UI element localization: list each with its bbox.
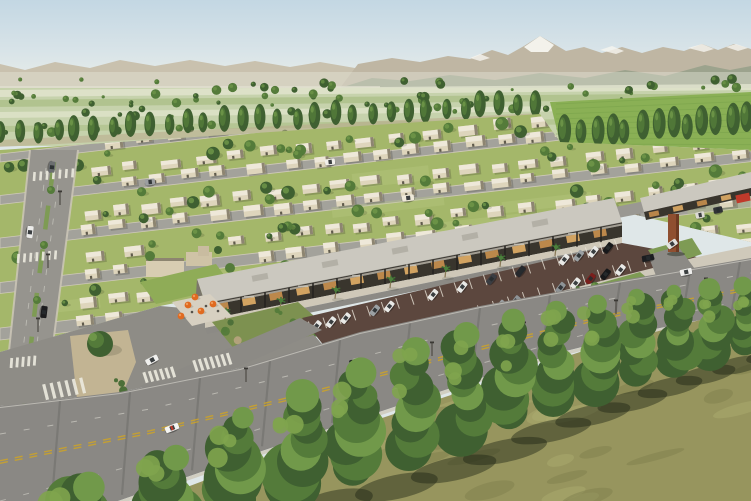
distant-tree-highlight [702, 86, 704, 88]
house [85, 268, 103, 281]
yard-tree-highlight [711, 166, 717, 172]
cafe-table [191, 311, 194, 314]
island-shrub [118, 380, 125, 387]
house [491, 177, 513, 191]
tree-highlight [663, 301, 673, 311]
poplar-tree-light [462, 101, 465, 106]
house [433, 140, 453, 154]
yard-tree-highlight [217, 232, 221, 236]
palm-crown [279, 298, 283, 302]
house [246, 162, 267, 176]
umbrella-highlight [193, 295, 195, 297]
distant-tree [176, 125, 183, 132]
distant-tree-highlight [42, 124, 44, 126]
distant-tree-highlight [252, 82, 254, 84]
distant-tree [129, 103, 134, 108]
yard-tree-highlight [94, 177, 98, 181]
house-door [402, 181, 405, 184]
house-door [666, 163, 669, 166]
poplar-tree-light [683, 118, 686, 124]
house-door [177, 220, 180, 223]
house [260, 145, 279, 158]
tree-highlight [543, 332, 558, 347]
yard-tree-highlight [267, 234, 270, 237]
cafe-umbrella [198, 308, 205, 315]
umbrella-highlight [211, 302, 213, 304]
house-door [706, 231, 709, 234]
house-door [142, 299, 145, 302]
poplar-tree-light [620, 123, 623, 129]
house [459, 163, 482, 177]
distant-tree [511, 88, 514, 91]
house-door [742, 229, 745, 232]
distant-tree [193, 93, 199, 99]
house-door [455, 214, 458, 217]
house [624, 163, 643, 175]
cafe-umbrella [210, 301, 217, 308]
distant-tree-highlight [194, 94, 196, 96]
tree-highlight [546, 309, 561, 324]
house [303, 199, 323, 212]
distant-tree-highlight [289, 108, 292, 111]
poplar-tree-light [332, 104, 335, 110]
house-door [265, 152, 268, 155]
distant-tree-highlight [263, 94, 266, 97]
tree-highlight [331, 399, 348, 416]
house-door [206, 203, 209, 206]
distant-tree-highlight [712, 77, 716, 81]
yard-tree-highlight [497, 119, 503, 125]
distant-tree [139, 106, 146, 113]
poplar-tree-light [56, 123, 59, 128]
distant-tree-highlight [118, 113, 120, 115]
distant-tree [568, 83, 575, 90]
yard-tree-highlight [193, 230, 197, 234]
house [227, 149, 246, 161]
distant-tree-highlight [261, 84, 264, 87]
cafe-umbrella [178, 313, 185, 320]
poplar-tree-light [476, 95, 479, 101]
yard-tree-highlight [653, 182, 656, 185]
cafe-table [217, 310, 220, 313]
car-cabin [406, 196, 411, 201]
yard-tree-highlight [568, 145, 571, 148]
island-shrub [114, 378, 118, 382]
tree-highlight [223, 434, 236, 447]
lamp-head [36, 318, 40, 320]
house-door [203, 161, 206, 164]
median-tree-highlight [34, 297, 38, 301]
distant-tree-highlight [140, 107, 143, 110]
distant-tree [207, 121, 216, 130]
poplar-tree-light [495, 94, 498, 100]
distant-tree [721, 80, 729, 88]
tree-foliage [698, 278, 720, 300]
distant-tree [434, 103, 442, 111]
distant-tree-highlight [230, 84, 234, 88]
scene-canvas [0, 0, 751, 501]
distant-tree-highlight [177, 126, 180, 129]
yard-tree-highlight [353, 206, 359, 212]
house-door [238, 197, 241, 200]
yard-tree-highlight [149, 241, 152, 244]
poplar-tree-light [560, 119, 563, 127]
poplar-tree-light [127, 115, 130, 121]
house [373, 148, 393, 162]
tree-highlight [577, 306, 591, 320]
house-door [524, 165, 527, 168]
distant-tree [625, 86, 633, 94]
poplar-tree-light [294, 112, 297, 117]
house-door [701, 159, 704, 162]
poplar-tree-light [311, 106, 314, 112]
poplar-tree-light [443, 102, 446, 107]
house-door [118, 212, 121, 215]
yard-tree-highlight [445, 124, 450, 129]
yard-tree-highlight [548, 153, 552, 157]
cafe-umbrella [185, 302, 192, 309]
house [181, 167, 201, 180]
house [465, 135, 488, 150]
umbrella-highlight [186, 303, 188, 305]
distant-tree-highlight [310, 91, 314, 95]
yard-tree-highlight [347, 136, 350, 139]
house-door [90, 276, 93, 279]
distant-tree [260, 83, 269, 92]
lamp-head [46, 254, 50, 256]
poplar-tree-light [256, 108, 259, 114]
cafe-table [205, 305, 208, 308]
house [228, 235, 247, 247]
distant-tree-highlight [583, 91, 586, 94]
poplar-tree-light [35, 125, 38, 130]
distant-tree [151, 89, 161, 99]
house-door [525, 179, 528, 182]
yard-tree-highlight [589, 161, 595, 167]
clubhouse-tree [145, 251, 155, 261]
yard-tree-highlight [541, 148, 545, 152]
house [614, 190, 636, 204]
distant-tree-highlight [19, 78, 21, 80]
umbrella-highlight [179, 314, 181, 316]
house-door [118, 270, 121, 273]
poplar-tree-light [220, 109, 223, 115]
distant-tree [270, 103, 274, 107]
yard-tree-highlight [294, 151, 298, 155]
house [302, 183, 322, 196]
poplar-tree-light [370, 107, 373, 112]
palm-shadow [497, 266, 509, 270]
yard-tree-highlight [19, 161, 25, 167]
house-door [92, 259, 95, 262]
distant-tree-highlight [90, 101, 92, 103]
house [433, 182, 452, 195]
house-door [420, 222, 423, 225]
distant-tree [292, 87, 298, 93]
distant-tree-highlight [130, 101, 132, 103]
distant-tree-highlight [544, 106, 547, 109]
house-door [379, 157, 382, 160]
yard-tree-highlight [432, 219, 438, 225]
distant-tree-highlight [511, 89, 512, 90]
distant-tree-highlight [626, 87, 629, 90]
distant-tree [172, 98, 181, 107]
distant-tree [364, 102, 369, 107]
yard-tree-highlight [204, 187, 209, 192]
house-door [504, 141, 507, 144]
tree-highlight [285, 415, 304, 434]
poplar-tree-light [577, 123, 580, 129]
yard-tree-highlight [675, 179, 680, 184]
distant-tree [79, 77, 83, 81]
yard-tree-highlight [208, 148, 214, 154]
distant-tree-highlight [272, 87, 275, 90]
yard-tree-highlight [411, 133, 416, 138]
car-cabin [328, 160, 332, 165]
distant-tree [118, 112, 123, 117]
distant-tree [18, 78, 22, 82]
yard-tree-highlight [266, 195, 271, 200]
poplar-tree-light [17, 124, 20, 129]
house [124, 245, 147, 259]
house-door [233, 241, 236, 244]
distant-tree [436, 80, 445, 89]
distant-tree-highlight [453, 110, 455, 112]
house-side [681, 230, 685, 241]
tree-foliage [286, 379, 319, 412]
yard-tree-highlight [262, 183, 267, 188]
distant-tree-highlight [569, 84, 572, 87]
poplar-tree-light [743, 106, 746, 113]
bed-shrub [275, 308, 280, 313]
distant-tree-highlight [73, 98, 76, 101]
house [382, 216, 401, 228]
distant-tree [319, 78, 328, 87]
house [273, 202, 295, 217]
distant-tree-highlight [438, 81, 442, 85]
poplar-tree-light [639, 114, 642, 121]
house-door [621, 199, 624, 202]
distant-tree-highlight [80, 78, 82, 80]
yard-tree-highlight [103, 212, 106, 215]
poplar-tree-light [422, 101, 425, 107]
house-door [328, 250, 331, 253]
house [616, 147, 636, 161]
distant-tree-highlight [648, 82, 651, 85]
house [113, 203, 131, 217]
poplar-tree-light [70, 119, 73, 125]
house-door [407, 151, 410, 154]
distant-tree-highlight [64, 97, 67, 100]
yard-tree-highlight [346, 182, 351, 187]
distant-tree-highlight [385, 103, 387, 105]
yard-tree-highlight [395, 139, 400, 144]
house-door [439, 149, 442, 152]
house-door [86, 232, 89, 235]
yard-tree [567, 144, 573, 150]
umbrella-highlight [199, 309, 201, 311]
house-door [429, 137, 432, 140]
yard-tree-highlight [620, 158, 623, 161]
poplar-tree-light [274, 112, 277, 117]
house [343, 151, 364, 165]
yard-tree-highlight [140, 215, 144, 219]
house [552, 168, 571, 180]
yard-tree-highlight [421, 177, 426, 182]
shop-sign-band [298, 286, 308, 288]
house [210, 209, 232, 223]
bed-shrub [221, 327, 230, 336]
house-door [280, 211, 283, 214]
tree-foliage [346, 357, 377, 388]
distant-tree-highlight [10, 99, 12, 101]
house-door [309, 207, 312, 210]
distant-tree-highlight [324, 111, 328, 115]
yard-tree-highlight [483, 203, 486, 206]
house [81, 223, 98, 237]
yard-tree-highlight [469, 202, 474, 207]
yard-tree-highlight [246, 142, 251, 147]
distant-tree [647, 81, 655, 89]
house [108, 219, 128, 231]
poplar-tree-light [514, 98, 517, 103]
yard-tree-highlight [91, 285, 96, 290]
poplar-tree-light [729, 108, 732, 116]
clubhouse-tree [225, 263, 235, 273]
house-body [628, 232, 648, 245]
distant-tree-highlight [155, 80, 157, 82]
house-door [319, 164, 322, 167]
house-door [214, 173, 217, 176]
house [325, 223, 345, 236]
distant-tree-highlight [733, 84, 737, 88]
yard-tree-highlight [62, 301, 65, 304]
house-door [536, 124, 539, 127]
distant-tree [271, 86, 279, 94]
clubhouse-tree [214, 246, 222, 254]
distant-tree-highlight [102, 96, 103, 97]
distant-tree-highlight [321, 80, 325, 84]
yard-tree-highlight [138, 188, 142, 192]
house-door [146, 225, 149, 228]
house [80, 296, 100, 311]
distant-tree-highlight [32, 95, 34, 97]
yard-tree-highlight [278, 145, 282, 149]
lamp-head [430, 342, 434, 344]
house [518, 201, 537, 215]
lamp-head [58, 191, 62, 193]
poplar-tree-light [405, 103, 408, 109]
house-door [131, 253, 134, 256]
distant-tree-highlight [292, 88, 294, 90]
poplar-tree-light [89, 120, 92, 126]
yard-tree-highlight [167, 208, 171, 212]
bed-shrub [234, 336, 242, 344]
house-door [292, 255, 295, 258]
distant-tree [400, 77, 408, 85]
house-door [370, 199, 373, 202]
house [628, 232, 650, 247]
house-door [110, 146, 113, 149]
distant-tree-highlight [723, 81, 726, 84]
aerial-rendering [0, 0, 751, 501]
distant-tree [251, 82, 256, 87]
house [86, 250, 107, 264]
distant-tree-highlight [421, 93, 425, 97]
yard-tree-highlight [373, 209, 378, 214]
poplar-tree-light [655, 113, 658, 120]
yard-tree-highlight [691, 223, 696, 228]
distant-tree-highlight [152, 91, 156, 95]
distant-tree [732, 83, 741, 92]
poplar-tree-light [110, 120, 113, 125]
house-door [388, 222, 391, 225]
tree-highlight [738, 297, 749, 308]
poplar-tree-light [349, 108, 352, 113]
house-door [737, 156, 740, 159]
yard-tree-highlight [642, 154, 646, 158]
monument-sign-edge [676, 214, 679, 252]
yard-tree-highlight [426, 210, 430, 214]
poplar-tree-light [711, 111, 714, 118]
distant-tree-highlight [271, 104, 272, 105]
lamp-head [244, 368, 248, 370]
yard-tree-highlight [189, 198, 195, 204]
distant-tree [9, 99, 15, 105]
poplar-tree-light [532, 94, 535, 100]
car-cabin [28, 230, 33, 235]
distant-tree [72, 97, 78, 103]
car-cabin [684, 269, 689, 274]
poplar-tree-light [609, 118, 612, 125]
house-door [264, 259, 267, 262]
distant-tree-highlight [12, 91, 14, 93]
shop-sign-band [514, 244, 524, 246]
yard-tree-highlight [324, 188, 327, 191]
yard-tree-highlight [572, 186, 578, 192]
house [422, 129, 443, 142]
house [258, 250, 276, 264]
house-side [644, 232, 648, 243]
distant-tree-highlight [83, 110, 86, 113]
house [208, 165, 227, 179]
distant-tree [701, 86, 705, 90]
house-shadow [630, 234, 650, 247]
distant-tree-highlight [213, 87, 217, 91]
house [243, 204, 266, 219]
distant-tree [711, 75, 720, 84]
palm-crown [334, 288, 338, 292]
distant-tree-highlight [173, 100, 177, 104]
house-door [523, 210, 526, 213]
poplar-tree-light [594, 120, 597, 127]
tree-highlight [148, 465, 165, 482]
house [364, 192, 385, 205]
house-door [331, 146, 334, 149]
house-door [438, 190, 441, 193]
tree-highlight [586, 331, 598, 343]
distant-tree-highlight [48, 129, 52, 133]
median-tree-highlight [41, 242, 45, 246]
palm-shadow [387, 287, 399, 291]
palm-crown [554, 245, 558, 249]
poplar-tree-light [670, 111, 673, 119]
house-roof [628, 232, 648, 240]
house-door [438, 175, 441, 178]
palm-crown [389, 277, 393, 281]
palm-shadow [442, 277, 454, 281]
distant-tree [102, 95, 105, 98]
